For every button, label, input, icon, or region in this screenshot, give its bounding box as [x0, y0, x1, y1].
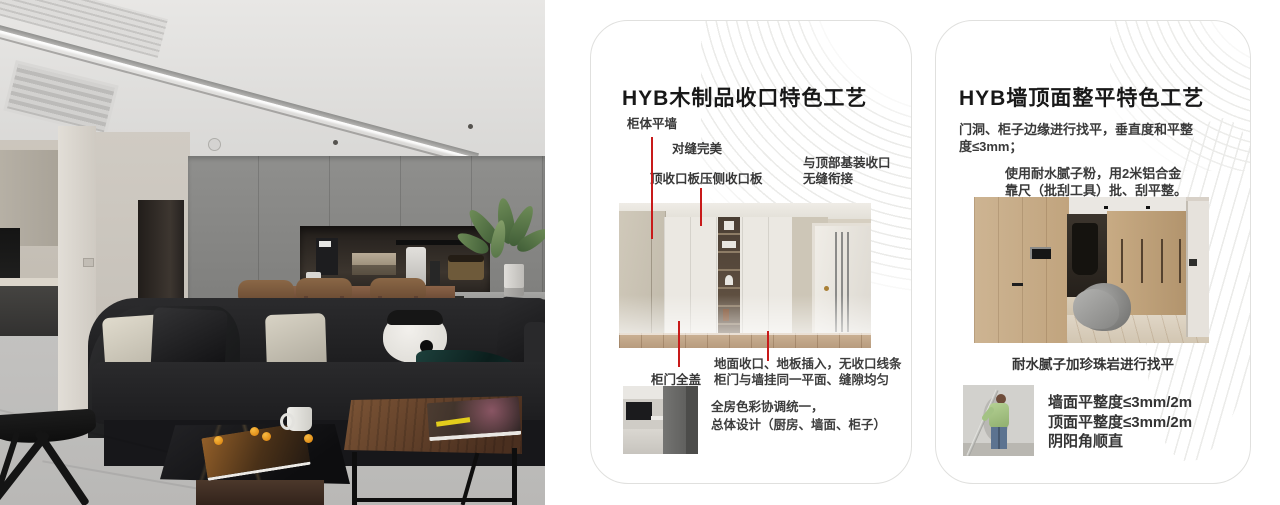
leader-line — [700, 188, 702, 226]
kumquat — [262, 432, 271, 441]
label-full-cover-door: 柜门全盖 — [651, 369, 701, 388]
photo-caption: 耐水腻子加珍珠岩进行找平 — [936, 353, 1250, 373]
worker-legs — [991, 427, 1007, 449]
leader-line — [678, 321, 680, 367]
label-ceiling-joint-2: 无缝衔接 — [803, 168, 853, 187]
kumquat — [250, 427, 259, 436]
bullet-corners-straight: 阴阳角顺直 — [1048, 430, 1123, 451]
spotlight — [1146, 206, 1150, 209]
utensil-rail — [396, 240, 468, 245]
page: HYB木制品收口特色工艺 柜体平墙 对缝完美 顶收口板压侧收口板 与顶部基装收口… — [0, 0, 1280, 505]
bullet-ceiling-flatness: 顶面平整度≤3mm/2m — [1048, 411, 1192, 432]
plant-pot — [504, 264, 524, 296]
render-wood-floor — [619, 333, 871, 348]
note-color-2: 总体设计（厨房、墙面、柜子） — [711, 414, 886, 433]
gray-throw — [1073, 289, 1119, 329]
kumquat — [304, 434, 313, 443]
leader-line — [651, 137, 653, 239]
kumquat — [214, 436, 223, 445]
smoke-detector — [208, 138, 221, 151]
color-scheme-thumbnail — [623, 386, 698, 454]
door-fitting — [1189, 259, 1197, 266]
spotlight — [468, 124, 473, 129]
card-title: HYB墙顶面整平特色工艺 — [959, 82, 1204, 112]
bullet-wall-flatness: 墙面平整度≤3mm/2m — [1048, 391, 1192, 412]
hallway-photo — [974, 197, 1209, 343]
light-switch — [83, 258, 94, 267]
label-perfect-joint: 对缝完美 — [672, 138, 722, 157]
card-title: HYB木制品收口特色工艺 — [622, 82, 867, 112]
hanging-clothes — [1072, 223, 1098, 275]
hallway-door — [138, 200, 184, 302]
kitchen-lower-cabinet — [0, 286, 60, 336]
worker-thumbnail — [963, 385, 1034, 456]
door-handle — [1012, 283, 1023, 286]
wardrobe-render-image — [619, 203, 871, 348]
coffee-machine — [316, 238, 338, 275]
card-wall-leveling: HYB墙顶面整平特色工艺 门洞、柜子边缘进行找平，垂直度和平整 度≤3mm； 使… — [935, 20, 1251, 484]
stone-table-base — [196, 480, 324, 505]
tv-panel — [626, 402, 652, 420]
living-room-photo — [0, 0, 545, 505]
door-knob — [824, 286, 829, 291]
spotlight — [333, 140, 338, 145]
potted-plant — [468, 198, 545, 300]
gray-cabinet — [663, 386, 698, 454]
coffee-grinder — [430, 261, 440, 285]
access-panel — [1030, 247, 1051, 259]
magazine-title-strip — [436, 417, 470, 427]
leader-line — [767, 331, 769, 361]
label-top-closeout-board: 顶收口板压侧收口板 — [650, 168, 763, 187]
magazine-stack — [427, 397, 521, 441]
card-wood-craft: HYB木制品收口特色工艺 柜体平墙 对缝完美 顶收口板压侧收口板 与顶部基装收口… — [590, 20, 912, 484]
brass-rack — [352, 253, 396, 275]
para-putty-2b: 靠尺（批刮工具）批、刮平整。 — [1005, 180, 1187, 199]
spotlight — [1104, 206, 1108, 209]
label-cabinet-flush-wall: 柜体平墙 — [627, 113, 677, 132]
kitchen-counter — [0, 278, 60, 286]
white-door — [1186, 201, 1209, 337]
bean-bag — [1077, 283, 1131, 331]
wood-panel-wall — [974, 197, 1069, 343]
note-floor-closeout-2: 柜门与墙挂同一平面、缝隙均匀 — [714, 369, 889, 388]
white-mug — [287, 407, 312, 431]
para-leveling-1b: 度≤3mm； — [959, 136, 1022, 155]
note-color-1: 全房色彩协调统一， — [711, 396, 824, 415]
